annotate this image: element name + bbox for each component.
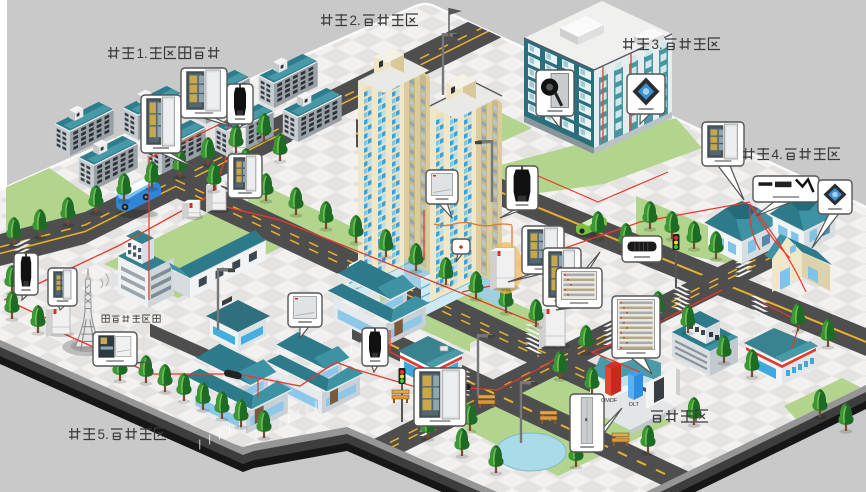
svg-text:1.: 1. — [137, 46, 148, 61]
svg-text:OMDF: OMDF — [601, 398, 618, 404]
svg-text:3.: 3. — [652, 37, 663, 52]
svg-text:5.: 5. — [98, 427, 109, 442]
svg-text:2.: 2. — [350, 13, 361, 28]
svg-text:4.: 4. — [772, 147, 783, 162]
svg-text:DLT: DLT — [629, 402, 640, 408]
